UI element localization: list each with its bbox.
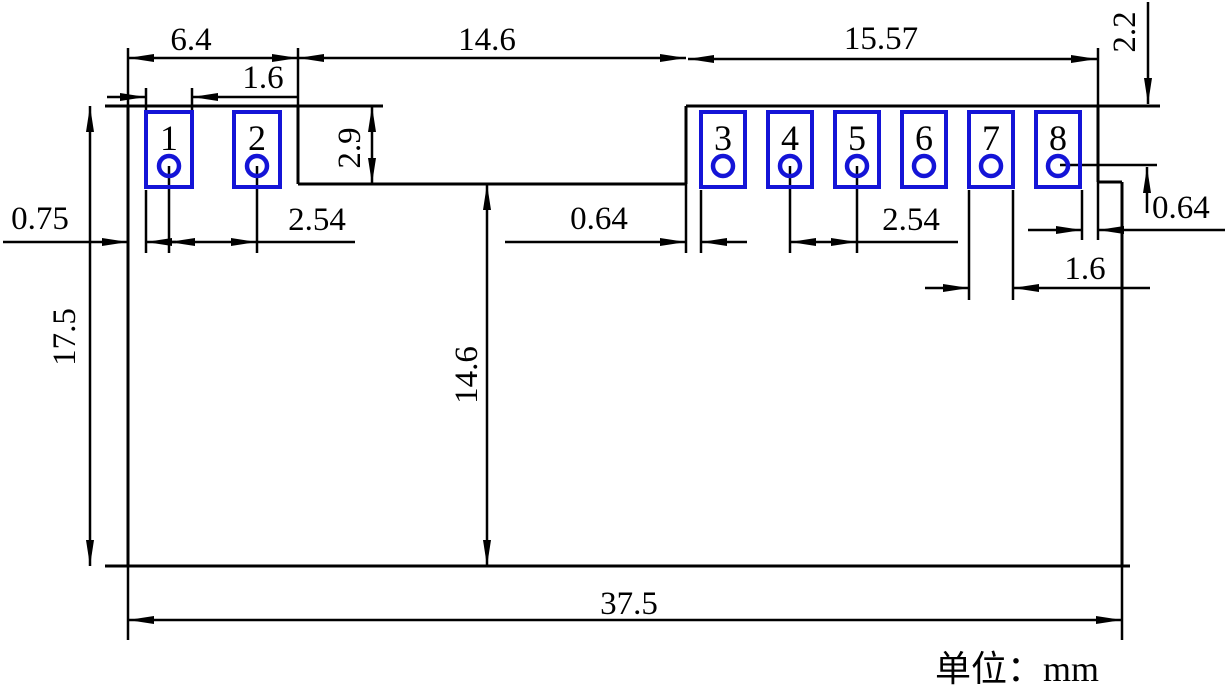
pad-number-4: 4 xyxy=(781,118,799,158)
dim-2-2: 2.2 xyxy=(1107,11,1143,52)
pad-number-1: 1 xyxy=(160,118,178,158)
dim-0-64-right: 0.64 xyxy=(1152,190,1210,226)
dim-0-64-left: 0.64 xyxy=(570,201,628,237)
dim-2-54-right: 2.54 xyxy=(882,202,940,238)
pads xyxy=(146,112,1080,187)
dim-1-6-left: 1.6 xyxy=(242,60,283,96)
pad-holes xyxy=(159,156,1068,176)
dim-15-57: 15.57 xyxy=(844,21,918,57)
dim-6-4: 6.4 xyxy=(170,22,211,58)
dim-2-9: 2.9 xyxy=(332,127,368,168)
unit-note: 单位：mm xyxy=(935,649,1099,689)
dim-17-5: 17.5 xyxy=(47,308,83,366)
dim-1-6-right: 1.6 xyxy=(1064,251,1105,287)
pad-number-7: 7 xyxy=(982,118,1000,158)
pad-number-6: 6 xyxy=(915,118,933,158)
dim-14-6-top: 14.6 xyxy=(458,22,516,58)
pad-numbers: 1 2 3 4 5 6 7 8 xyxy=(160,118,1067,158)
dim-0-75: 0.75 xyxy=(11,201,69,237)
pad-number-5: 5 xyxy=(848,118,866,158)
pad-number-2: 2 xyxy=(248,118,266,158)
pad-number-3: 3 xyxy=(714,118,732,158)
dim-37-5: 37.5 xyxy=(600,586,658,622)
pad-number-8: 8 xyxy=(1049,118,1067,158)
extension-lines xyxy=(128,48,1157,640)
dimension-drawing: 1 2 3 4 5 6 7 8 6.4 1.6 14.6 15.57 2.2 2… xyxy=(0,0,1225,692)
dim-2-54-left: 2.54 xyxy=(288,202,346,238)
dimension-lines xyxy=(3,2,1225,620)
dim-14-6-vertical: 14.6 xyxy=(449,346,485,404)
